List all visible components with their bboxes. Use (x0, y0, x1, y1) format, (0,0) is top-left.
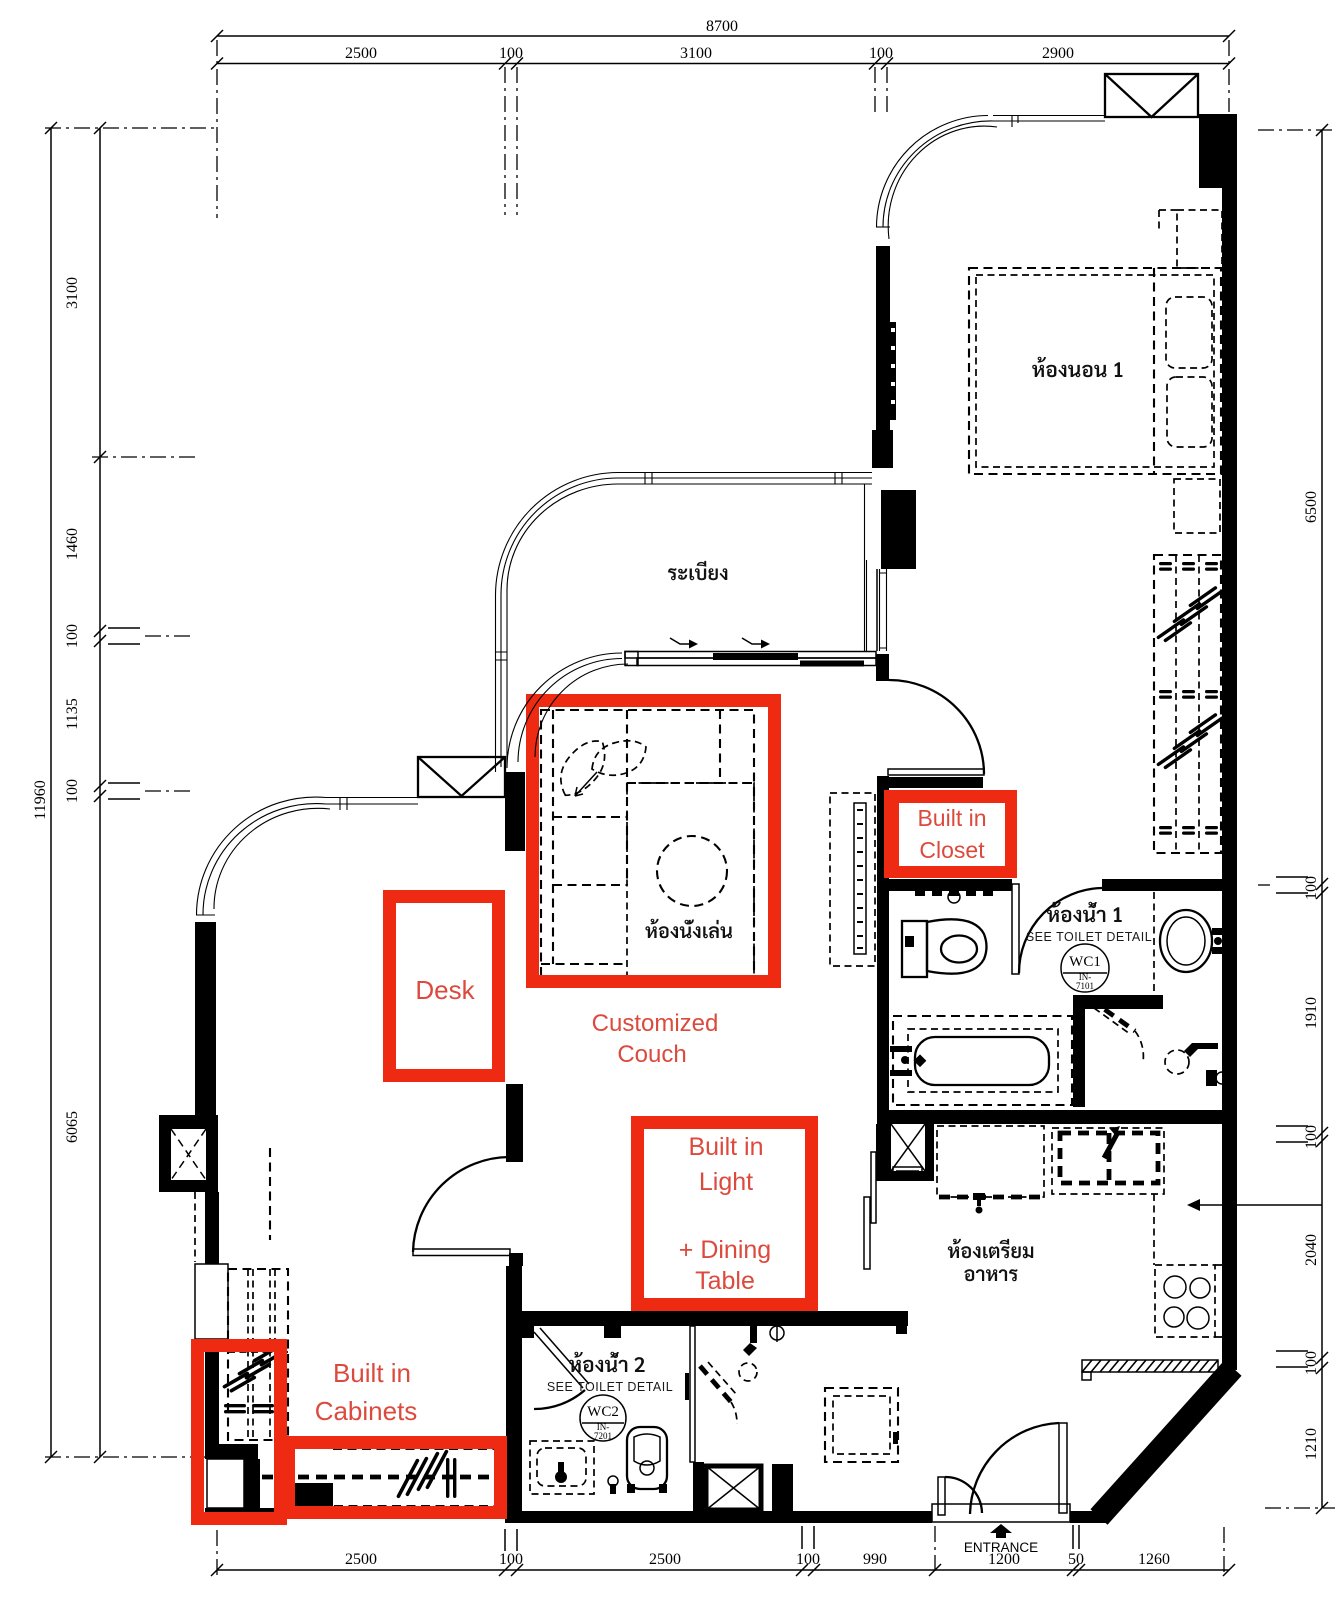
svg-text:Cabinets: Cabinets (315, 1396, 418, 1426)
svg-text:50: 50 (1068, 1551, 1084, 1568)
svg-text:ENTRANCE: ENTRANCE (964, 1540, 1038, 1555)
svg-text:SEE TOILET DETAIL: SEE TOILET DETAIL (1026, 930, 1152, 944)
svg-text:100: 100 (1303, 1351, 1320, 1375)
svg-text:Closet: Closet (919, 837, 985, 863)
svg-text:Built in: Built in (917, 805, 986, 831)
svg-text:WC2: WC2 (587, 1404, 619, 1420)
svg-text:100: 100 (869, 45, 893, 62)
svg-text:100: 100 (1303, 876, 1320, 900)
svg-text:100: 100 (796, 1551, 820, 1568)
svg-text:+ Dining: + Dining (679, 1236, 771, 1264)
svg-text:1260: 1260 (1138, 1551, 1170, 1568)
svg-text:Built in: Built in (333, 1358, 411, 1388)
svg-text:11960: 11960 (32, 780, 49, 819)
svg-text:WC1: WC1 (1069, 954, 1101, 970)
svg-text:3100: 3100 (680, 45, 712, 62)
svg-text:Couch: Couch (617, 1041, 686, 1068)
svg-text:SEE TOILET DETAIL: SEE TOILET DETAIL (547, 1380, 673, 1394)
svg-text:2900: 2900 (1042, 45, 1074, 62)
svg-text:100: 100 (499, 45, 523, 62)
svg-text:100: 100 (499, 1551, 523, 1568)
svg-text:6065: 6065 (64, 1111, 81, 1143)
svg-text:990: 990 (863, 1551, 887, 1568)
svg-text:Desk: Desk (415, 975, 475, 1005)
svg-text:100: 100 (64, 624, 81, 648)
svg-text:1210: 1210 (1303, 1428, 1320, 1460)
svg-text:2500: 2500 (345, 1551, 377, 1568)
svg-text:6500: 6500 (1303, 491, 1320, 523)
svg-text:Table: Table (695, 1267, 755, 1295)
svg-text:Customized: Customized (592, 1010, 719, 1037)
svg-text:2500: 2500 (649, 1551, 681, 1568)
svg-text:7201: 7201 (594, 1431, 612, 1441)
svg-text:2040: 2040 (1303, 1234, 1320, 1266)
svg-text:7101: 7101 (1076, 981, 1094, 991)
svg-text:2500: 2500 (345, 45, 377, 62)
svg-text:100: 100 (1303, 1125, 1320, 1149)
svg-text:Built in: Built in (688, 1133, 763, 1161)
svg-text:Light: Light (699, 1168, 753, 1196)
svg-text:8700: 8700 (706, 18, 738, 35)
svg-text:1135: 1135 (64, 698, 81, 729)
svg-text:100: 100 (64, 779, 81, 803)
svg-text:1460: 1460 (64, 528, 81, 560)
svg-text:3100: 3100 (64, 277, 81, 309)
svg-text:1910: 1910 (1303, 997, 1320, 1029)
